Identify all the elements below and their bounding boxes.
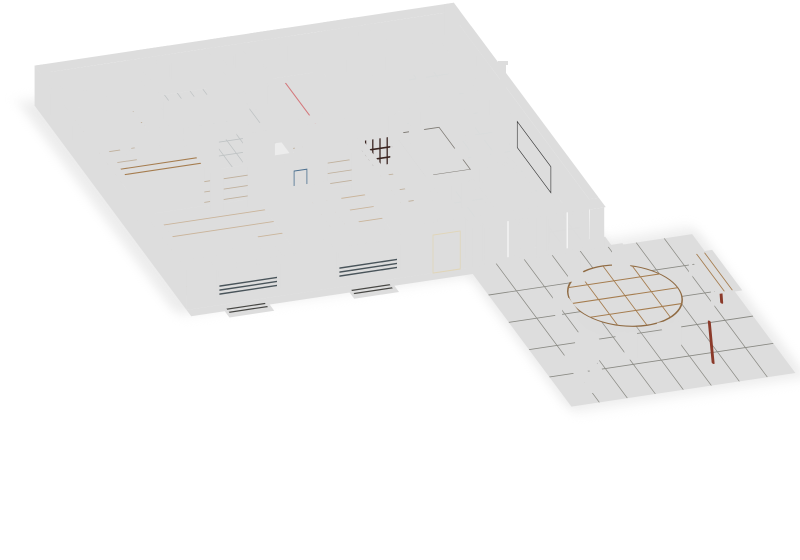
floor-plan-svg bbox=[0, 0, 800, 560]
terrace-chair-back bbox=[668, 323, 681, 351]
front-door bbox=[433, 231, 460, 273]
stove-pipe bbox=[500, 64, 506, 108]
hall-wardrobe bbox=[117, 152, 205, 217]
terrace-chair-back bbox=[624, 333, 637, 361]
floor-plan-stage bbox=[0, 0, 800, 560]
dining-chair bbox=[461, 180, 472, 208]
door-pillar bbox=[590, 207, 604, 249]
